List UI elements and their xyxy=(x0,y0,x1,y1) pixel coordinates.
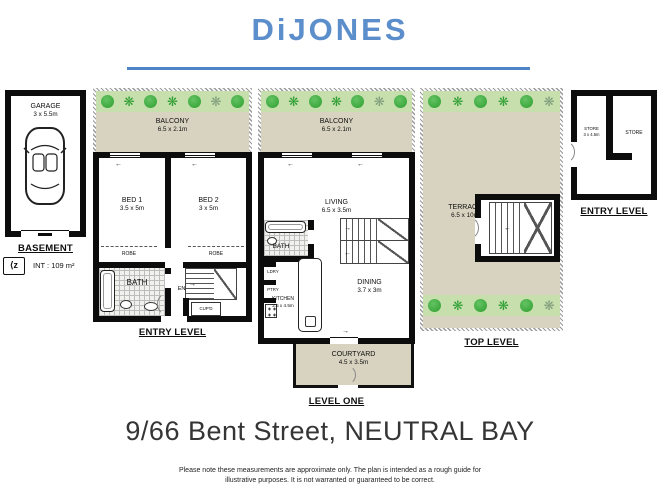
gate-opening xyxy=(338,385,358,388)
store-level-label: ENTRY LEVEL xyxy=(571,206,657,217)
plant-icon xyxy=(520,95,533,108)
level-one-plan: ← ← LIVING 6.5 x 3.5m → ← BATH LDRY xyxy=(258,152,415,344)
stair-enclosure: ← xyxy=(475,194,560,262)
plant-icon: ❋ xyxy=(210,95,221,108)
window xyxy=(110,152,140,158)
floorplan-page: DiJONES GARAGE 3 x 5.5m BASEMENT ⟨z INT … xyxy=(0,0,660,495)
room-label-balcony-2: BALCONY 6.5 x 2.1m xyxy=(261,117,412,134)
door-opening xyxy=(308,230,314,244)
car-icon xyxy=(23,126,67,206)
plant-icon: ❋ xyxy=(452,95,463,108)
door-arc xyxy=(157,292,181,316)
level-one-balcony: ❋❋❋ BALCONY 6.5 x 2.1m xyxy=(258,88,415,156)
wall xyxy=(606,96,613,160)
courtyard: COURTYARD 4.5 x 3.5m xyxy=(293,344,414,388)
plant-strip: ❋❋❋ xyxy=(423,295,560,316)
plant-icon xyxy=(351,95,364,108)
plant-icon: ❋ xyxy=(288,95,299,108)
room-label-bed1: BED 1 3.5 x 5m xyxy=(99,196,165,213)
wall xyxy=(183,298,189,316)
plant-strip: ❋❋❋ xyxy=(261,91,412,112)
door-arc xyxy=(336,365,356,385)
room-label-ldry: LDRY xyxy=(264,269,282,275)
wall xyxy=(264,262,276,267)
plant-icon: ❋ xyxy=(544,95,555,108)
stairs: → xyxy=(185,268,237,300)
wall xyxy=(606,153,632,160)
garage-door-panel xyxy=(38,233,52,236)
plant-icon xyxy=(428,299,441,312)
room-label-store2: STORE xyxy=(617,130,651,137)
plant-icon xyxy=(188,95,201,108)
plant-strip: ❋❋❋ xyxy=(96,91,249,112)
bathroom: BATH xyxy=(264,220,308,256)
stairs: → ← xyxy=(340,218,409,264)
plant-icon xyxy=(266,95,279,108)
internal-area-label: INT : 109 m² xyxy=(33,261,75,270)
door-arrow-icon: ← xyxy=(287,161,294,168)
plant-icon xyxy=(520,299,533,312)
window xyxy=(185,152,215,158)
door-arrow-icon: → xyxy=(342,328,349,335)
entry-door-opening xyxy=(161,316,187,322)
top-level-terrace: ❋❋❋ ❋❋❋ TERRACE 6.5 x 10m ← xyxy=(420,88,563,331)
sink-icon xyxy=(305,316,316,327)
plant-icon xyxy=(144,95,157,108)
robe-1: ROBE xyxy=(101,246,157,262)
room-label-bath-2: BATH xyxy=(266,243,296,251)
door-arrow-icon: ← xyxy=(191,161,198,168)
room-label-garage: GARAGE 3 x 5.5m xyxy=(11,102,80,119)
header-rule xyxy=(127,67,530,70)
plant-icon: ❋ xyxy=(498,299,509,312)
window xyxy=(352,152,382,158)
plant-icon xyxy=(309,95,322,108)
robe-2: ROBE xyxy=(188,246,244,262)
garage-door xyxy=(21,230,69,237)
stairs-arrow-icon: ← xyxy=(504,225,511,232)
plant-icon xyxy=(428,95,441,108)
plant-icon: ❋ xyxy=(452,299,463,312)
plant-icon: ❋ xyxy=(498,95,509,108)
wall xyxy=(264,280,276,285)
plant-icon xyxy=(101,95,114,108)
brand-logo: DiJONES xyxy=(0,12,660,48)
store-plan: STORE 3 x 4.5m STORE xyxy=(571,90,657,200)
entry-level-label: ENTRY LEVEL xyxy=(93,327,252,338)
door-arrow-icon: ← xyxy=(115,161,122,168)
room-label-ptry: PTRY xyxy=(264,287,282,293)
stairs-arrow-icon: → xyxy=(344,225,351,232)
stairs-arrow-icon: ← xyxy=(344,250,351,257)
cupboard: CUP'D xyxy=(191,302,221,316)
stairs-run xyxy=(341,240,408,263)
entry-level-plan: ← ← BED 1 3.5 x 5m BED 2 3 x 5m ROBE ROB… xyxy=(93,152,252,322)
stairs-arrow-icon: → xyxy=(189,281,196,288)
door-arc xyxy=(551,140,575,164)
door-arrow-icon: ← xyxy=(357,161,364,168)
toilet-icon xyxy=(120,300,132,309)
bathtub-icon xyxy=(265,221,306,233)
kitchen-island xyxy=(298,258,322,332)
room-label-store1: STORE 3 x 4.5m xyxy=(577,126,606,137)
top-level-label: TOP LEVEL xyxy=(420,337,563,348)
door-arc xyxy=(455,216,479,240)
plant-strip: ❋❋❋ xyxy=(423,91,560,112)
north-arrow-icon: ⟨z xyxy=(3,257,25,275)
plant-icon xyxy=(231,95,244,108)
basement-plan: GARAGE 3 x 5.5m xyxy=(5,90,86,237)
plant-icon xyxy=(394,95,407,108)
plant-icon: ❋ xyxy=(544,299,555,312)
bathtub-icon xyxy=(100,270,115,312)
window xyxy=(282,152,312,158)
room-label-dining: DINING 3.7 x 3m xyxy=(330,278,409,295)
disclaimer-text: Please note these measurements are appro… xyxy=(170,466,490,486)
plant-icon xyxy=(474,95,487,108)
room-label-living: LIVING 6.5 x 3.5m xyxy=(264,198,409,215)
plant-icon: ❋ xyxy=(167,95,178,108)
stairs-run xyxy=(341,219,408,241)
bathroom: BATH xyxy=(99,268,165,316)
basement-level-label: BASEMENT xyxy=(5,243,86,254)
entry-level-balcony: ❋❋❋ BALCONY 6.5 x 2.1m xyxy=(93,88,252,156)
property-address: 9/66 Bent Street, NEUTRAL BAY xyxy=(0,416,660,447)
room-label-kitchen: KITCHEN 2.5 x 4.5m xyxy=(268,296,298,308)
room-label-courtyard: COURTYARD 4.5 x 3.5m xyxy=(296,350,411,367)
plant-icon xyxy=(474,299,487,312)
room-label-bed2: BED 2 3 x 5m xyxy=(171,196,246,213)
room-label-bath-1: BATH xyxy=(115,278,159,288)
plant-icon: ❋ xyxy=(331,95,342,108)
sink-icon xyxy=(144,302,158,311)
room-label-balcony-1: BALCONY 6.5 x 2.1m xyxy=(96,117,249,134)
level-one-label: LEVEL ONE xyxy=(258,396,415,407)
plant-icon: ❋ xyxy=(374,95,385,108)
stairs: ← xyxy=(489,202,552,254)
plant-icon: ❋ xyxy=(124,95,135,108)
door-opening xyxy=(330,337,358,344)
